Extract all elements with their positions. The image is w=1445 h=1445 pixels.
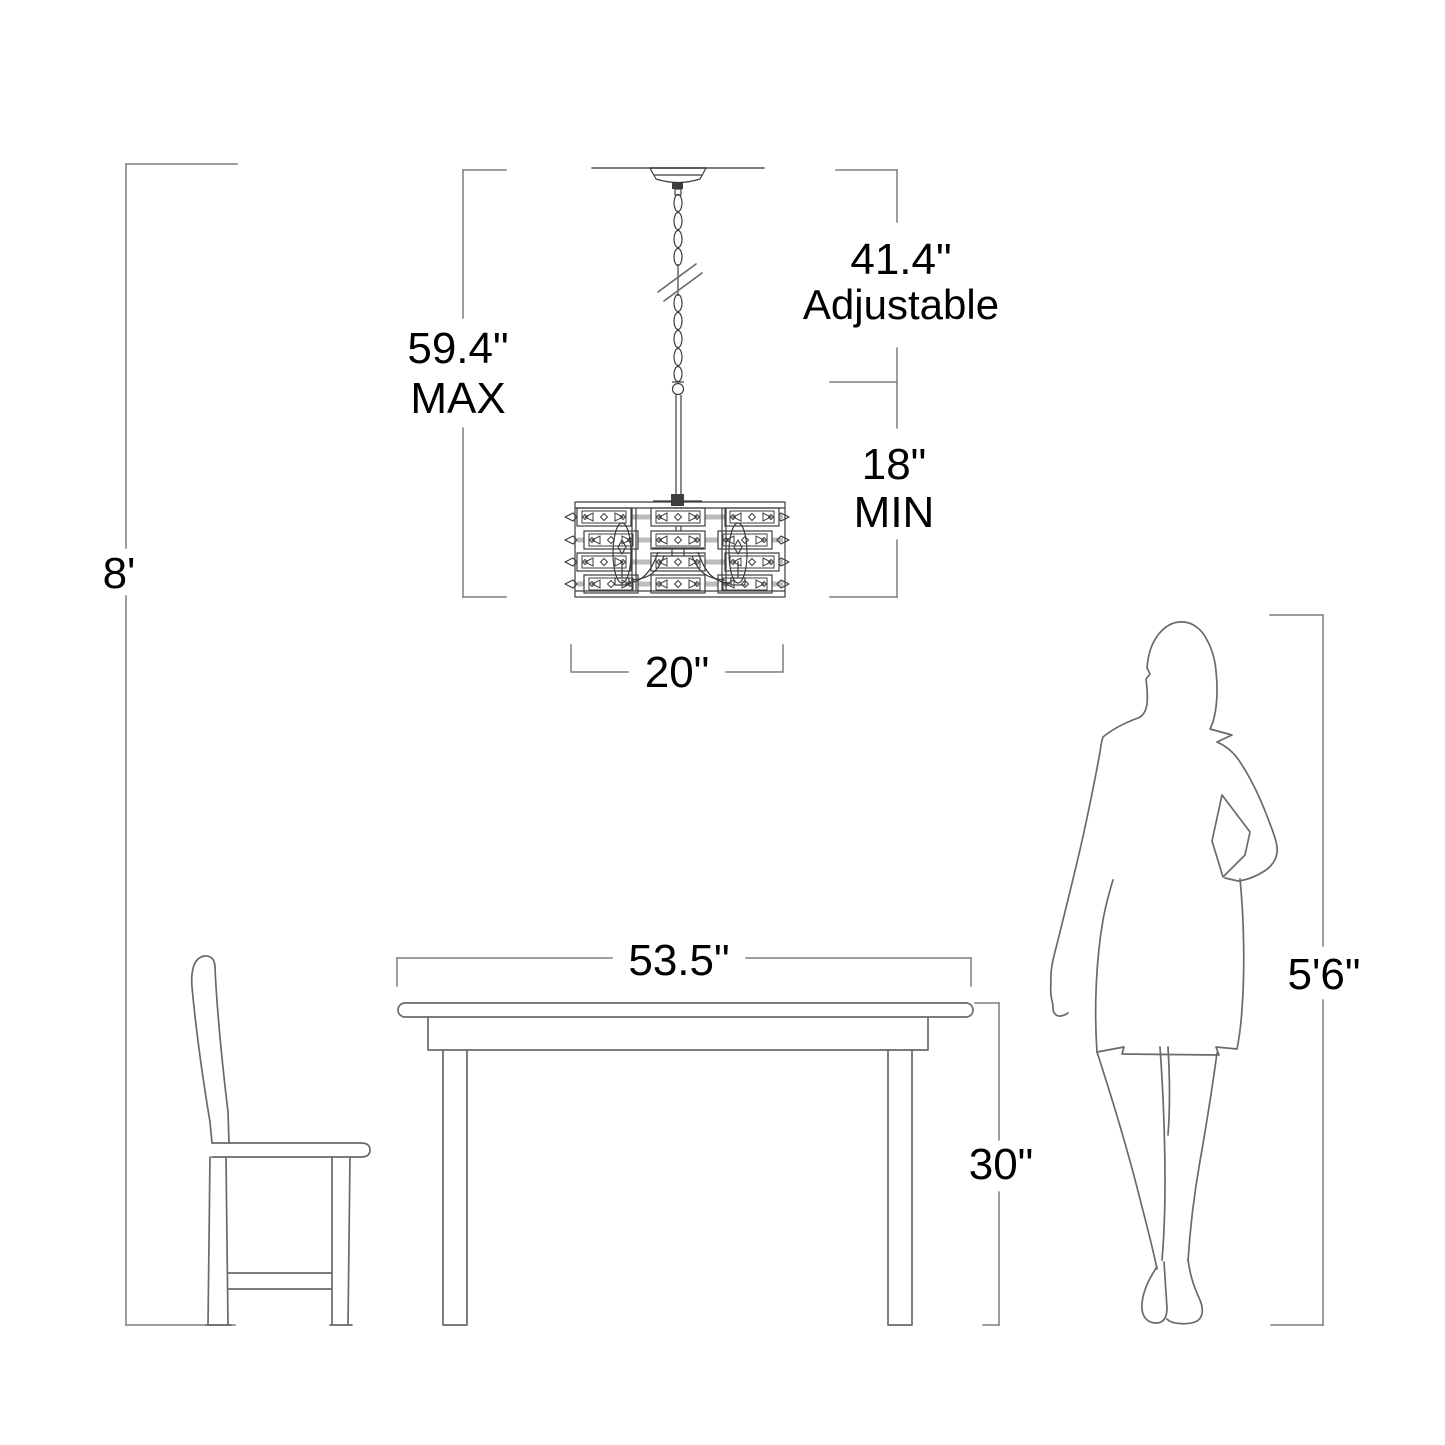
dim-tick xyxy=(726,645,783,672)
dimension-diagram: 8' 59.4" MAX 41.4" Adjustable 18" MIN 20… xyxy=(0,0,1445,1445)
dim-table-width: 53.5" xyxy=(397,936,971,986)
crystal-cassette-grid xyxy=(577,508,779,593)
dim-ceiling-height: 8' xyxy=(103,164,237,1325)
person-silhouette xyxy=(1051,622,1278,1324)
dim-label-person-height: 5'6" xyxy=(1288,950,1361,999)
canopy-connector xyxy=(672,182,683,189)
dim-max-drop: 59.4" MAX xyxy=(407,170,508,597)
dim-label-fixture-width: 20" xyxy=(645,648,710,697)
dim-adjustable: 41.4" Adjustable xyxy=(803,170,999,428)
canopy xyxy=(650,168,706,195)
dim-label-min-qualifier: MIN xyxy=(854,488,935,537)
chandelier xyxy=(565,168,789,597)
dim-label-adjustable-value: 41.4" xyxy=(850,235,951,284)
dim-person-height: 5'6" xyxy=(1270,615,1360,1325)
dim-label-ceiling-height: 8' xyxy=(103,549,136,598)
dim-label-adjustable-qualifier: Adjustable xyxy=(803,281,999,328)
dim-label-table-height: 30" xyxy=(969,1140,1034,1189)
dim-label-max-value: 59.4" xyxy=(407,324,508,373)
dim-tick xyxy=(571,645,628,672)
dim-min-drop: 18" MIN xyxy=(830,440,934,597)
dim-label-max-qualifier: MAX xyxy=(410,374,505,423)
dim-table-height: 30" xyxy=(969,1003,1034,1325)
table xyxy=(398,1003,973,1325)
chair xyxy=(192,956,370,1325)
dim-fixture-width: 20" xyxy=(571,645,783,697)
dim-label-min-value: 18" xyxy=(862,440,927,489)
fixture-body xyxy=(565,502,789,597)
dim-label-table-width: 53.5" xyxy=(628,936,729,985)
diagram-canvas: 8' 59.4" MAX 41.4" Adjustable 18" MIN 20… xyxy=(0,0,1445,1445)
